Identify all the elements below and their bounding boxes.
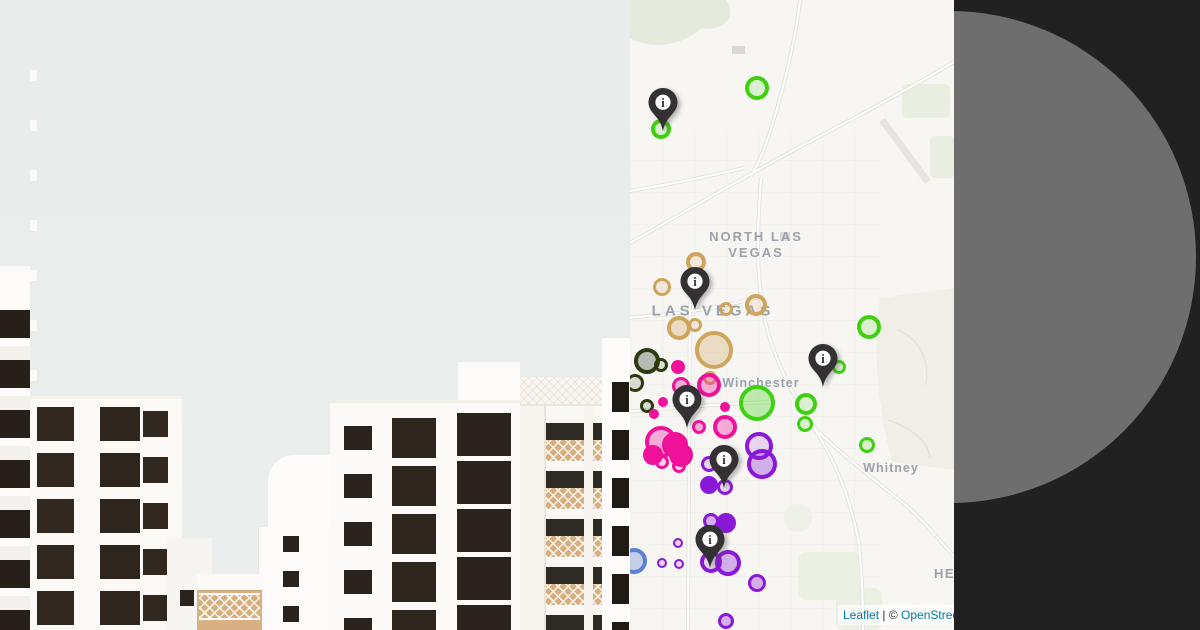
map-marker-tan[interactable]	[688, 318, 702, 332]
map-marker-tan[interactable]	[719, 302, 733, 316]
map-place-label: HEN	[934, 566, 954, 582]
building-lattice-hut	[197, 574, 262, 630]
map-place-label: NORTH LASVEGAS	[709, 229, 803, 262]
building-curved-rooftop	[268, 455, 335, 535]
window-column	[457, 413, 511, 630]
window	[180, 590, 194, 606]
info-pin[interactable]: i	[708, 444, 740, 495]
leaflet-link[interactable]: Leaflet	[843, 608, 879, 622]
info-pin[interactable]: i	[679, 266, 711, 317]
map-marker-olive[interactable]	[654, 358, 668, 372]
info-pin-icon: i	[807, 343, 839, 389]
map-marker-green[interactable]	[859, 437, 875, 453]
building-left-tower	[0, 266, 30, 630]
map-marker-green[interactable]	[795, 393, 817, 415]
building-roof-step	[458, 362, 520, 403]
map-marker-magenta[interactable]	[720, 402, 730, 412]
info-pin-icon: i	[671, 384, 703, 430]
building-parapet	[197, 574, 262, 591]
info-pin[interactable]: i	[671, 384, 703, 435]
map-marker-purple[interactable]	[718, 613, 734, 629]
map-marker-purple[interactable]	[748, 574, 766, 592]
info-pin[interactable]: i	[647, 87, 679, 138]
openstreetmap-link[interactable]: OpenStreetMap	[901, 608, 954, 622]
building-left-midrise	[25, 396, 182, 630]
svg-text:i: i	[821, 352, 825, 366]
attribution-separator: |	[879, 608, 889, 622]
map-marker-green[interactable]	[739, 385, 775, 421]
lattice-balcony	[199, 593, 260, 620]
svg-text:i: i	[693, 275, 697, 289]
map-attribution: Leaflet | © OpenStreetMap	[838, 605, 954, 625]
leaflet-map[interactable]: NORTH LASVEGASLAS VEGASWinchesterWhitney…	[630, 0, 954, 630]
info-pin-icon: i	[647, 87, 679, 133]
balcony-bands	[0, 310, 30, 630]
window-column	[392, 418, 436, 630]
map-marker-magenta[interactable]	[713, 415, 737, 439]
map-marker-magenta[interactable]	[671, 360, 685, 374]
map-marker-green[interactable]	[857, 315, 881, 339]
map-marker-tan[interactable]	[653, 278, 671, 296]
info-pin-icon: i	[708, 444, 740, 490]
building-parapet	[0, 266, 30, 311]
map-marker-green[interactable]	[745, 76, 769, 100]
info-pin[interactable]: i	[807, 343, 839, 394]
balcony-slabs	[30, 44, 37, 630]
map-marker-tan[interactable]	[695, 331, 733, 369]
social-card: NORTH LASVEGASLAS VEGASWinchesterWhitney…	[0, 0, 1200, 630]
svg-text:i: i	[685, 393, 689, 407]
building-pier	[520, 404, 546, 630]
window-column	[283, 536, 299, 630]
info-pin-icon: i	[679, 266, 711, 312]
map-marker-magenta[interactable]	[655, 455, 669, 469]
info-pin[interactable]: i	[694, 524, 726, 575]
building-pier	[584, 404, 593, 630]
building-small-white	[258, 527, 336, 630]
dark-side-panel	[954, 0, 1200, 630]
map-marker-purple[interactable]	[747, 449, 777, 479]
svg-text:i: i	[708, 533, 712, 547]
map-marker-magenta[interactable]	[672, 459, 686, 473]
building-right-sliver	[602, 338, 630, 630]
svg-text:i: i	[661, 96, 665, 110]
map-marker-magenta[interactable]	[649, 409, 659, 419]
cityscape-photo	[0, 0, 630, 630]
window-column	[344, 426, 372, 630]
window-column	[612, 382, 629, 630]
map-marker-tan[interactable]	[667, 316, 691, 340]
decorative-circle	[954, 11, 1196, 503]
map-marker-green[interactable]	[797, 416, 813, 432]
window-column	[143, 411, 168, 627]
info-pin-icon: i	[694, 524, 726, 570]
map-place-label: Whitney	[863, 461, 919, 477]
window-column	[100, 407, 140, 627]
window-column	[37, 407, 74, 627]
map-marker-purple[interactable]	[674, 559, 684, 569]
svg-text:i: i	[722, 453, 726, 467]
attribution-copyright: ©	[889, 608, 901, 622]
map-marker-tan[interactable]	[745, 294, 767, 316]
map-marker-purple[interactable]	[673, 538, 683, 548]
map-marker-magenta[interactable]	[658, 397, 668, 407]
building-central	[330, 400, 520, 630]
map-marker-purple[interactable]	[657, 558, 667, 568]
